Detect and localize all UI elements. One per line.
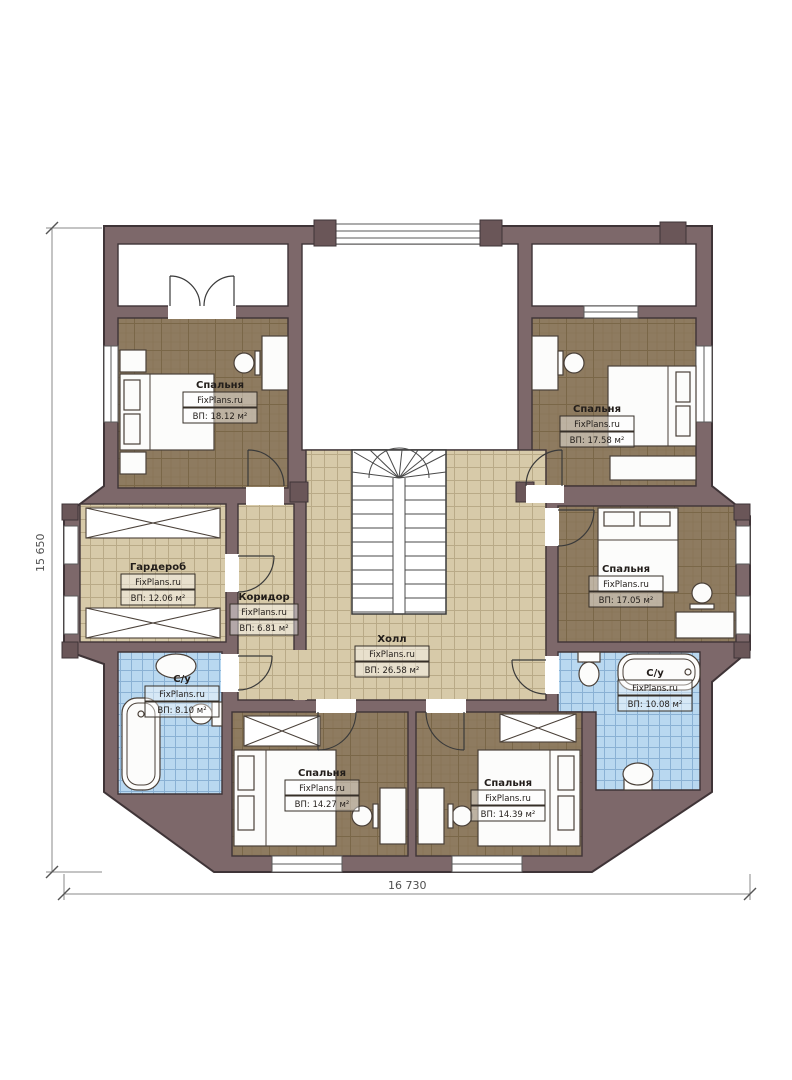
watermark: FixPlans.ru [574, 420, 620, 430]
desk [676, 612, 734, 638]
chair-back [255, 351, 260, 375]
floor-plan-sheet: Спальня FixPlans.ru ВП: 18.12 м² Спальня… [0, 0, 792, 1080]
pilaster [480, 220, 502, 246]
room-area: ВП: 10.08 м² [628, 700, 683, 710]
toilet [579, 662, 599, 686]
room-area: ВП: 26.58 м² [365, 666, 420, 676]
window-right-bay-1 [736, 526, 750, 564]
room-name: Спальня [298, 768, 346, 779]
room-area: ВП: 17.05 м² [599, 596, 654, 606]
room-area: ВП: 8.10 м² [157, 706, 206, 716]
desk [532, 336, 558, 390]
column [290, 482, 308, 502]
room-name: С/у [646, 668, 664, 679]
staircase [352, 448, 446, 614]
chair-back [373, 804, 378, 828]
watermark: FixPlans.ru [632, 684, 678, 694]
room-name: Спальня [573, 404, 621, 415]
window-right-bay-2 [736, 596, 750, 634]
floor-plan: Спальня FixPlans.ru ВП: 18.12 м² Спальня… [0, 0, 792, 1080]
balcony-top-right-floor [532, 244, 696, 306]
watermark: FixPlans.ru [603, 580, 649, 590]
watermark: FixPlans.ru [299, 784, 345, 794]
window-left-bay-1 [64, 526, 78, 564]
nightstand [120, 452, 146, 474]
pillow [676, 372, 690, 402]
desk [418, 788, 444, 844]
chair-back [558, 351, 563, 375]
chair [564, 353, 584, 373]
chair [234, 353, 254, 373]
room-name: Спальня [484, 778, 532, 789]
pillow [558, 796, 574, 830]
room-label-wardrobe: Гардероб FixPlans.ru ВП: 12.06 м² [121, 561, 195, 605]
pillow [238, 756, 254, 790]
room-name: Коридор [238, 592, 289, 603]
chair [452, 806, 472, 826]
dimension-horizontal-label: 16 730 [388, 879, 427, 892]
room-area: ВП: 12.06 м² [131, 594, 186, 604]
dimension-vertical-label: 15 650 [34, 534, 47, 573]
watermark: FixPlans.ru [135, 578, 181, 588]
pillow [238, 796, 254, 830]
watermark: FixPlans.ru [197, 396, 243, 406]
pillow [558, 756, 574, 790]
pilaster [62, 642, 78, 658]
pillow [124, 414, 140, 444]
room-name: С/у [173, 674, 191, 685]
desk [380, 788, 406, 844]
balcony-top-left-floor [118, 244, 288, 306]
hall-corridor-opening [293, 650, 307, 700]
desk [262, 336, 288, 390]
room-area: ВП: 14.39 м² [481, 810, 536, 820]
pillow [640, 512, 670, 526]
room-name: Гардероб [130, 561, 186, 573]
window-top-center [336, 224, 482, 244]
pillow [124, 380, 140, 410]
pilaster [660, 222, 686, 244]
room-area: ВП: 17.58 м² [570, 436, 625, 446]
dresser [610, 456, 696, 480]
window-left-bay-2 [64, 596, 78, 634]
room-name: Холл [377, 634, 406, 645]
watermark: FixPlans.ru [159, 690, 205, 700]
drain [138, 711, 144, 717]
pilaster [62, 504, 78, 520]
drain [685, 669, 691, 675]
pilaster [734, 642, 750, 658]
chair-back [690, 604, 714, 609]
pilaster [314, 220, 336, 246]
toilet-tank [578, 652, 600, 662]
pillow [676, 406, 690, 436]
sink [623, 763, 653, 785]
room-area: ВП: 14.27 м² [295, 800, 350, 810]
watermark: FixPlans.ru [369, 650, 415, 660]
pillow [604, 512, 634, 526]
room-label-corridor: Коридор FixPlans.ru ВП: 6.81 м² [230, 592, 298, 635]
void-top-floor [302, 244, 518, 450]
room-area: ВП: 6.81 м² [239, 624, 288, 634]
watermark: FixPlans.ru [485, 794, 531, 804]
watermark: FixPlans.ru [241, 608, 287, 618]
room-area: ВП: 18.12 м² [193, 412, 248, 422]
dimension-horizontal: 16 730 [58, 874, 756, 900]
room-name: Спальня [196, 380, 244, 391]
chair [692, 583, 712, 603]
nightstand [120, 350, 146, 372]
room-name: Спальня [602, 564, 650, 575]
pilaster [734, 504, 750, 520]
chair-back [448, 804, 453, 828]
